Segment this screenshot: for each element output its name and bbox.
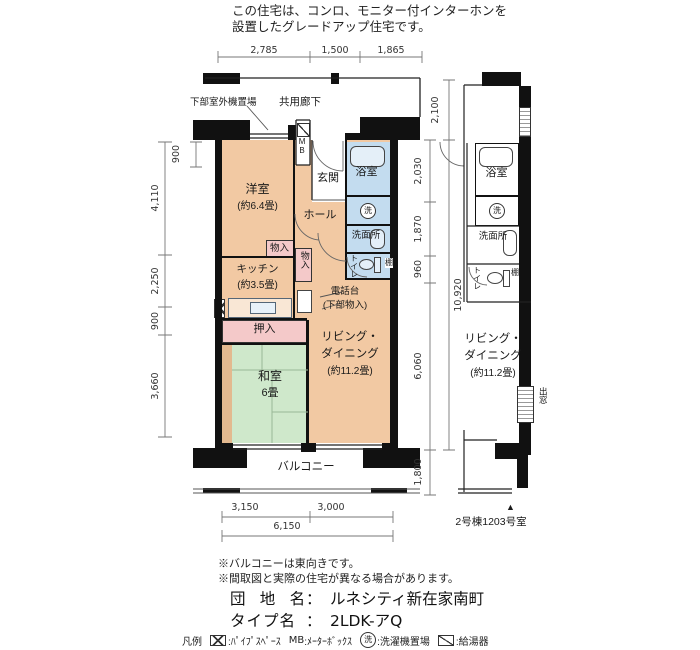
- note-2: ※間取図と実際の住宅が異なる場合があります。: [218, 570, 459, 586]
- western-room-size: (約6.4畳): [222, 197, 293, 212]
- dim-left-1: 4,110: [150, 176, 162, 220]
- tatami-edge-strip: [222, 345, 232, 443]
- dim-right-5: 1,800: [413, 450, 425, 494]
- type-name-label: タイプ名: [230, 609, 296, 631]
- living-label: リビング・ ダイニング (約11.2畳): [309, 329, 391, 379]
- dim-right-total: 10,920: [453, 273, 465, 317]
- estate-name-label: 団 地 名: [230, 587, 310, 609]
- living-line2: ダイニング: [309, 346, 391, 363]
- dim-bottom-1: 3,150: [225, 502, 265, 514]
- side-wall-top: [482, 72, 521, 86]
- closet-b-label: 物入: [299, 251, 310, 269]
- side-living-label: リビング・ ダイニング (約11.2畳): [453, 331, 533, 381]
- balcony-label: バルコニー: [222, 461, 390, 475]
- floorplan-page: この住宅は、コンロ、モニター付インターホンを 設置したグレードアップ住宅です。 …: [0, 0, 700, 650]
- legend-heater-label: :給湯器: [456, 633, 489, 648]
- kitchen-size: (約3.5畳): [222, 276, 293, 291]
- kitchen-sink-icon: [250, 302, 276, 314]
- estate-name-value: ルネシティ新在家南町: [330, 587, 484, 609]
- bathtub-icon: [350, 146, 385, 167]
- wall-kitchen-oshiire: [215, 318, 307, 320]
- pipe-space-legend-icon: [210, 635, 226, 646]
- wall-left: [215, 140, 222, 452]
- wall-oshiire-tatami: [222, 343, 308, 345]
- wall-western-kitchen: [222, 256, 293, 258]
- tatami-name: 和室: [232, 367, 308, 384]
- dim-top-2: 1,500: [315, 45, 355, 57]
- tatami-size: 6畳: [232, 384, 308, 400]
- room-entrance: [312, 140, 345, 202]
- side-wall-bottom-col: [517, 455, 528, 488]
- wall-segment: [288, 125, 296, 140]
- dim-top-1: 2,785: [244, 45, 284, 57]
- side-wall-right-a: [519, 86, 531, 107]
- header-line1: この住宅は、コンロ、モニター付インターホンを: [232, 3, 507, 19]
- water-heater-icon: [297, 123, 310, 137]
- washroom-label: 洗面所: [346, 230, 386, 241]
- dim-left-inner: 900: [171, 132, 183, 176]
- dim-top-3: 1,865: [371, 45, 411, 57]
- side-toilet-tank-icon: [503, 270, 510, 287]
- water-heater-legend-icon: [438, 635, 454, 646]
- wall-western-hall: [293, 140, 295, 258]
- legend-wash-icon: 洗: [360, 632, 376, 648]
- dim-left-4: 3,660: [150, 364, 162, 408]
- living-line1: リビング・: [309, 329, 391, 346]
- wall-wet-left: [345, 140, 347, 280]
- dim-bottom-total: 6,150: [267, 521, 307, 533]
- side-living-line1: リビング・: [453, 331, 533, 348]
- washing-machine-icon: 洗: [360, 203, 376, 219]
- balcony-rail-seg-right: [371, 488, 407, 493]
- dim-bottom-2: 3,000: [311, 502, 351, 514]
- entrance-label: 玄関: [311, 172, 345, 185]
- dim-right-4: 6,060: [413, 344, 425, 388]
- note-1: ※バルコニーは東向きです。: [218, 555, 360, 571]
- type-name-value: 2LDK-アQ: [330, 609, 402, 631]
- outdoor-unit-label: 下部室外機置場: [190, 97, 257, 108]
- phone-stand-fixture: [297, 290, 312, 313]
- side-bathtub-icon: [479, 147, 513, 167]
- wall-bath-washer: [345, 195, 390, 197]
- toilet-tank-icon: [374, 257, 381, 273]
- header-line2: 設置したグレードアップ住宅です。: [232, 19, 431, 35]
- shelf-label: 棚: [385, 258, 393, 268]
- dim-left-2: 2,250: [150, 259, 162, 303]
- side-bay-window: [517, 386, 534, 423]
- balcony-rail-seg-left: [203, 488, 240, 493]
- kitchen-name: キッチン: [222, 261, 293, 276]
- side-window-hatch: [519, 107, 531, 137]
- living-line3: (約11.2畳): [309, 364, 391, 379]
- dim-right-3: 960: [413, 247, 425, 291]
- mb-label: MB: [297, 137, 307, 155]
- wall-bottom-b: [301, 443, 316, 452]
- legend-mb-icon: MB: [289, 635, 305, 646]
- western-room-label: 洋室 (約6.4畳): [222, 180, 293, 212]
- legend-title: 凡例: [182, 633, 202, 648]
- toilet-bowl-icon: [359, 259, 374, 270]
- side-washing-machine-icon: 洗: [489, 203, 505, 219]
- type-name-sep: ：: [306, 609, 322, 631]
- side-bath-label: 浴室: [474, 167, 519, 180]
- wall-toilet-bottom: [345, 278, 390, 280]
- legend-wash-label: :洗濯機置場: [377, 633, 430, 648]
- toilet-label: トイレ: [349, 254, 359, 278]
- unit-marker-icon: ▲: [506, 502, 515, 513]
- side-living-line2: ダイニング: [453, 348, 533, 365]
- tatami-room-label: 和室 6畳: [232, 367, 308, 400]
- legend-pipe-label: :ﾊﾟｲﾌﾟｽﾍﾟｰｽ: [228, 633, 281, 648]
- phone-stand-label: 電話台 (下部物入): [315, 283, 375, 311]
- wall-bath-top: [345, 133, 362, 140]
- legend-mb-label: :ﾒｰﾀｰﾎﾞｯｸｽ: [304, 633, 352, 648]
- side-washroom-label: 洗面所: [468, 231, 518, 242]
- dim-right-2: 1,870: [413, 207, 425, 251]
- side-shelf-label: 棚: [511, 268, 519, 278]
- dim-left-3: 900: [150, 299, 162, 343]
- side-toilet-bowl-icon: [487, 272, 503, 284]
- wall-top-left: [193, 120, 250, 140]
- corridor-label: 共用廊下: [272, 96, 328, 109]
- phone-line2: (下部物入): [315, 297, 375, 311]
- corridor-wall-tick: [331, 73, 339, 84]
- side-living-line3: (約11.2畳): [453, 366, 533, 381]
- phone-line1: 電話台: [315, 283, 375, 297]
- estate-name-sep: ：: [306, 587, 322, 609]
- closet-a-label: 物入: [264, 243, 295, 254]
- kitchen-label: キッチン (約3.5畳): [222, 261, 293, 291]
- oshiire-label: 押入: [222, 323, 307, 336]
- bay-window-label: 出窓: [538, 387, 548, 404]
- legend-row: 凡例 :ﾊﾟｲﾌﾟｽﾍﾟｰｽ MB :ﾒｰﾀｰﾎﾞｯｸｽ 洗 :洗濯機置場 :給…: [182, 632, 489, 648]
- dim-right-corridor: 2,100: [430, 88, 442, 132]
- wall-right: [390, 140, 398, 452]
- wall-kitchen-living: [293, 258, 295, 318]
- unit-number-label: 2号棟1203号室: [432, 516, 550, 529]
- dim-right-1: 2,030: [413, 149, 425, 193]
- wall-washer-washroom: [345, 224, 390, 226]
- corridor-wall-block: [203, 73, 240, 84]
- western-room-name: 洋室: [222, 180, 293, 197]
- bath-label: 浴室: [345, 166, 388, 179]
- side-toilet-label: トイレ: [472, 266, 482, 290]
- hall-label: ホール: [296, 209, 344, 222]
- wall-top-right: [360, 117, 420, 140]
